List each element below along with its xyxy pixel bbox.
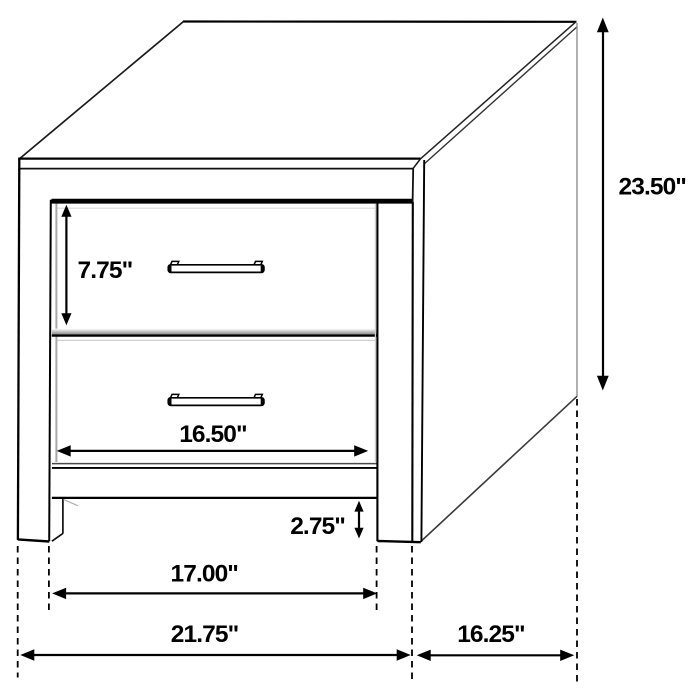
svg-text:21.75": 21.75" [171, 621, 239, 648]
svg-text:17.00": 17.00" [171, 561, 239, 588]
svg-text:2.75": 2.75" [290, 513, 345, 540]
svg-text:16.25": 16.25" [457, 621, 525, 648]
svg-text:16.50": 16.50" [179, 421, 247, 448]
svg-text:23.50": 23.50" [619, 173, 687, 200]
svg-text:7.75": 7.75" [78, 257, 133, 284]
